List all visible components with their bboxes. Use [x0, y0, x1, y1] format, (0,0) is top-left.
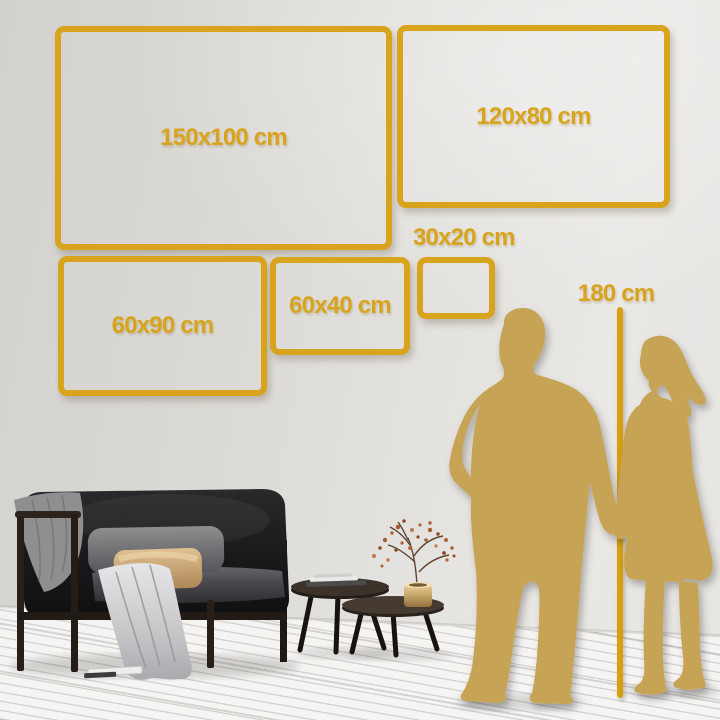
- size-guide-scene: 150x100 cm 120x80 cm 60x90 cm 60x40 cm 3…: [0, 0, 720, 720]
- height-reference-line: [617, 307, 623, 698]
- height-label: 180 cm: [556, 280, 676, 308]
- frame-120x80: 120x80 cm: [397, 25, 670, 208]
- frame-60x40: 60x40 cm: [270, 257, 410, 355]
- size-label-30x20: 30x20 cm: [413, 224, 515, 252]
- size-label-60x40: 60x40 cm: [289, 292, 391, 320]
- size-label-150x100: 150x100 cm: [160, 124, 287, 152]
- size-label-120x80: 120x80 cm: [476, 103, 590, 131]
- frame-150x100: 150x100 cm: [55, 26, 392, 250]
- frame-30x20: [417, 257, 495, 319]
- size-label-60x90: 60x90 cm: [112, 312, 214, 340]
- frame-60x90: 60x90 cm: [58, 256, 267, 396]
